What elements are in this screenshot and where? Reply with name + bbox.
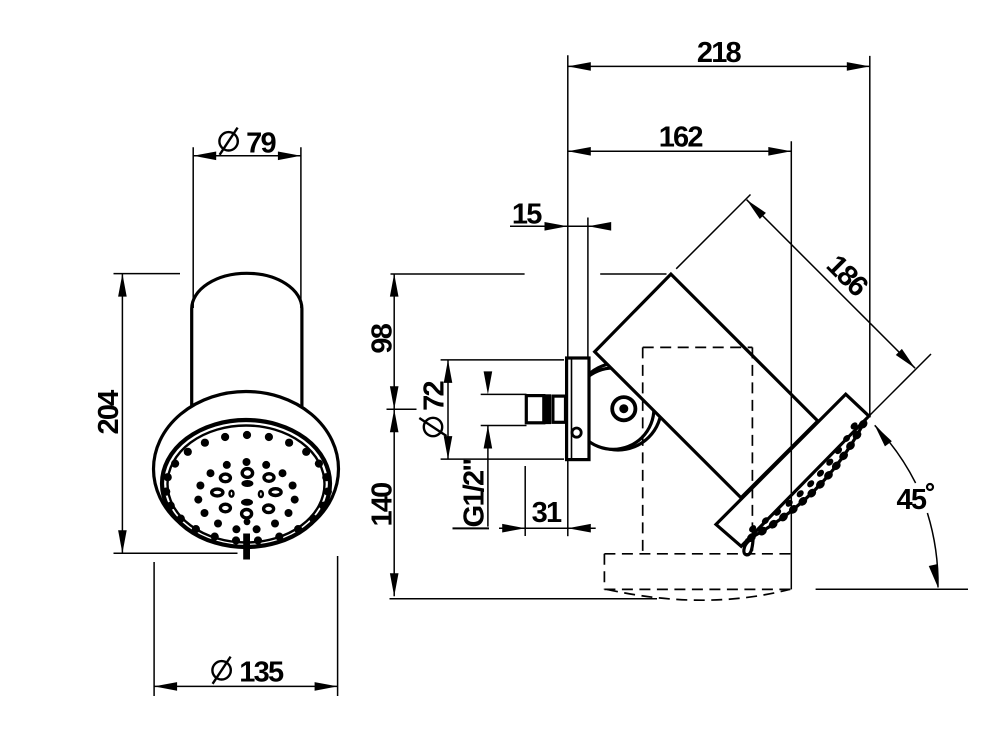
svg-text:79: 79: [246, 128, 276, 160]
svg-text:G1/2": G1/2": [459, 460, 491, 528]
svg-text:45: 45: [897, 484, 927, 516]
svg-text:72: 72: [419, 382, 451, 411]
svg-text:140: 140: [366, 483, 398, 527]
svg-text:98: 98: [366, 323, 398, 353]
svg-text:15: 15: [512, 198, 542, 230]
svg-text:218: 218: [697, 37, 742, 69]
svg-text:135: 135: [239, 657, 284, 689]
svg-text:204: 204: [93, 390, 125, 435]
svg-text:31: 31: [532, 497, 562, 529]
svg-text:162: 162: [659, 121, 703, 153]
